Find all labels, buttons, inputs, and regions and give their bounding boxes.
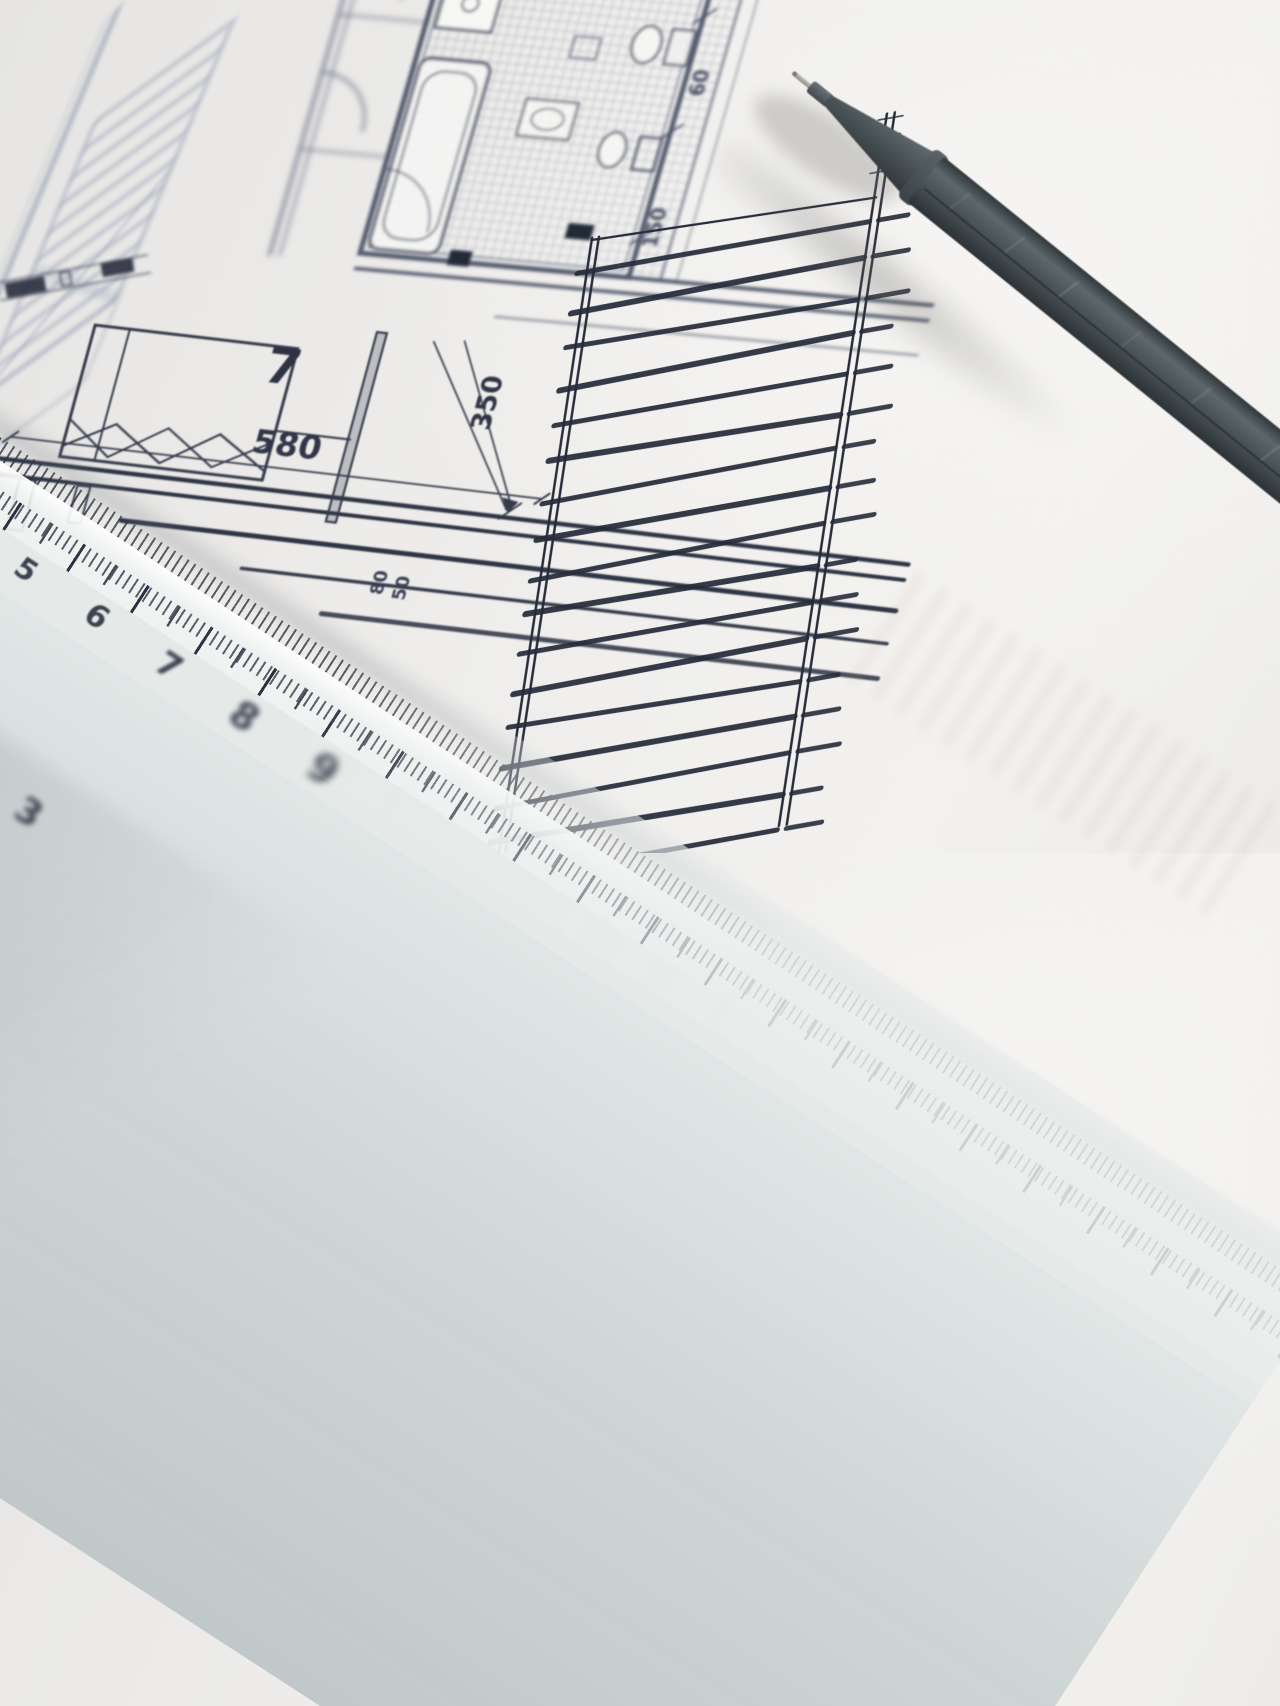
ruler-number-7: 7 (147, 643, 191, 688)
stroke (855, 366, 890, 372)
ruler-number-6: 6 (77, 596, 117, 637)
ruler-number-8: 8 (220, 692, 268, 740)
stroke (844, 441, 874, 446)
wall-poche (564, 223, 594, 241)
stroke (833, 514, 874, 521)
stroke (838, 480, 873, 486)
sink (516, 99, 578, 140)
fixture (569, 36, 601, 60)
stroke (798, 744, 839, 751)
dim-50: 50 (388, 575, 415, 602)
hall-wall-inner (280, 0, 377, 256)
stroke (786, 822, 821, 828)
thin-wall (326, 332, 387, 522)
photo-scene: 60 150 7 580 350 (0, 0, 1280, 853)
stroke (878, 116, 903, 120)
wall-poche (101, 258, 135, 278)
ruler-number-9: 9 (297, 744, 348, 796)
stroke (826, 560, 856, 565)
toilet (627, 25, 665, 64)
stroke (792, 788, 822, 793)
ruler-number-5: 5 (7, 551, 44, 589)
dim-350: 350 (465, 374, 510, 432)
left-wall-inner (0, 18, 106, 461)
stroke (815, 630, 856, 637)
stroke (809, 675, 839, 680)
bed-headboard (94, 329, 129, 460)
dim-580: 580 (248, 422, 327, 468)
stroke (849, 406, 890, 413)
window-wall (0, 255, 151, 301)
stroke (803, 709, 838, 715)
wall-stub (300, 149, 388, 157)
shower (435, 0, 506, 32)
wall-stub (339, 14, 427, 22)
left-wall (0, 10, 117, 453)
stroke (821, 595, 856, 601)
wall-poche (446, 249, 472, 266)
hall-wall (270, 0, 367, 255)
